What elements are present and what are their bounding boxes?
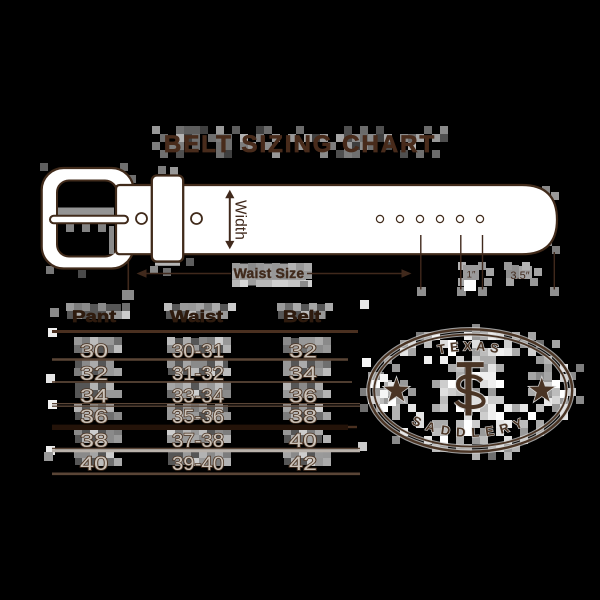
svg-text:40: 40: [289, 430, 317, 452]
svg-text:36: 36: [80, 406, 108, 428]
svg-text:1″: 1″: [467, 270, 476, 281]
svg-text:Width: Width: [231, 200, 248, 240]
svg-text:38: 38: [289, 406, 317, 428]
svg-text:Belt: Belt: [283, 307, 321, 326]
svg-text:37-38: 37-38: [172, 430, 224, 452]
svg-text:42: 42: [289, 453, 317, 475]
svg-text:39-40: 39-40: [172, 453, 224, 475]
svg-text:3.5″: 3.5″: [510, 270, 529, 282]
svg-text:31-32: 31-32: [172, 363, 224, 385]
svg-text:BELT SIZING CHART: BELT SIZING CHART: [164, 131, 436, 158]
svg-text:Pant: Pant: [72, 307, 116, 326]
svg-text:34: 34: [80, 386, 108, 408]
svg-text:30: 30: [80, 341, 108, 363]
svg-text:30-31: 30-31: [172, 341, 224, 363]
svg-text:Waist Size: Waist Size: [234, 265, 305, 281]
svg-text:40: 40: [80, 453, 108, 475]
svg-text:34: 34: [289, 363, 317, 385]
svg-text:38: 38: [80, 430, 108, 452]
svg-text:32: 32: [289, 341, 317, 363]
svg-text:32: 32: [80, 363, 108, 385]
svg-text:33-34: 33-34: [172, 386, 224, 408]
svg-text:36: 36: [289, 386, 317, 408]
svg-text:Waist: Waist: [170, 307, 223, 326]
svg-text:35-36: 35-36: [172, 406, 224, 428]
